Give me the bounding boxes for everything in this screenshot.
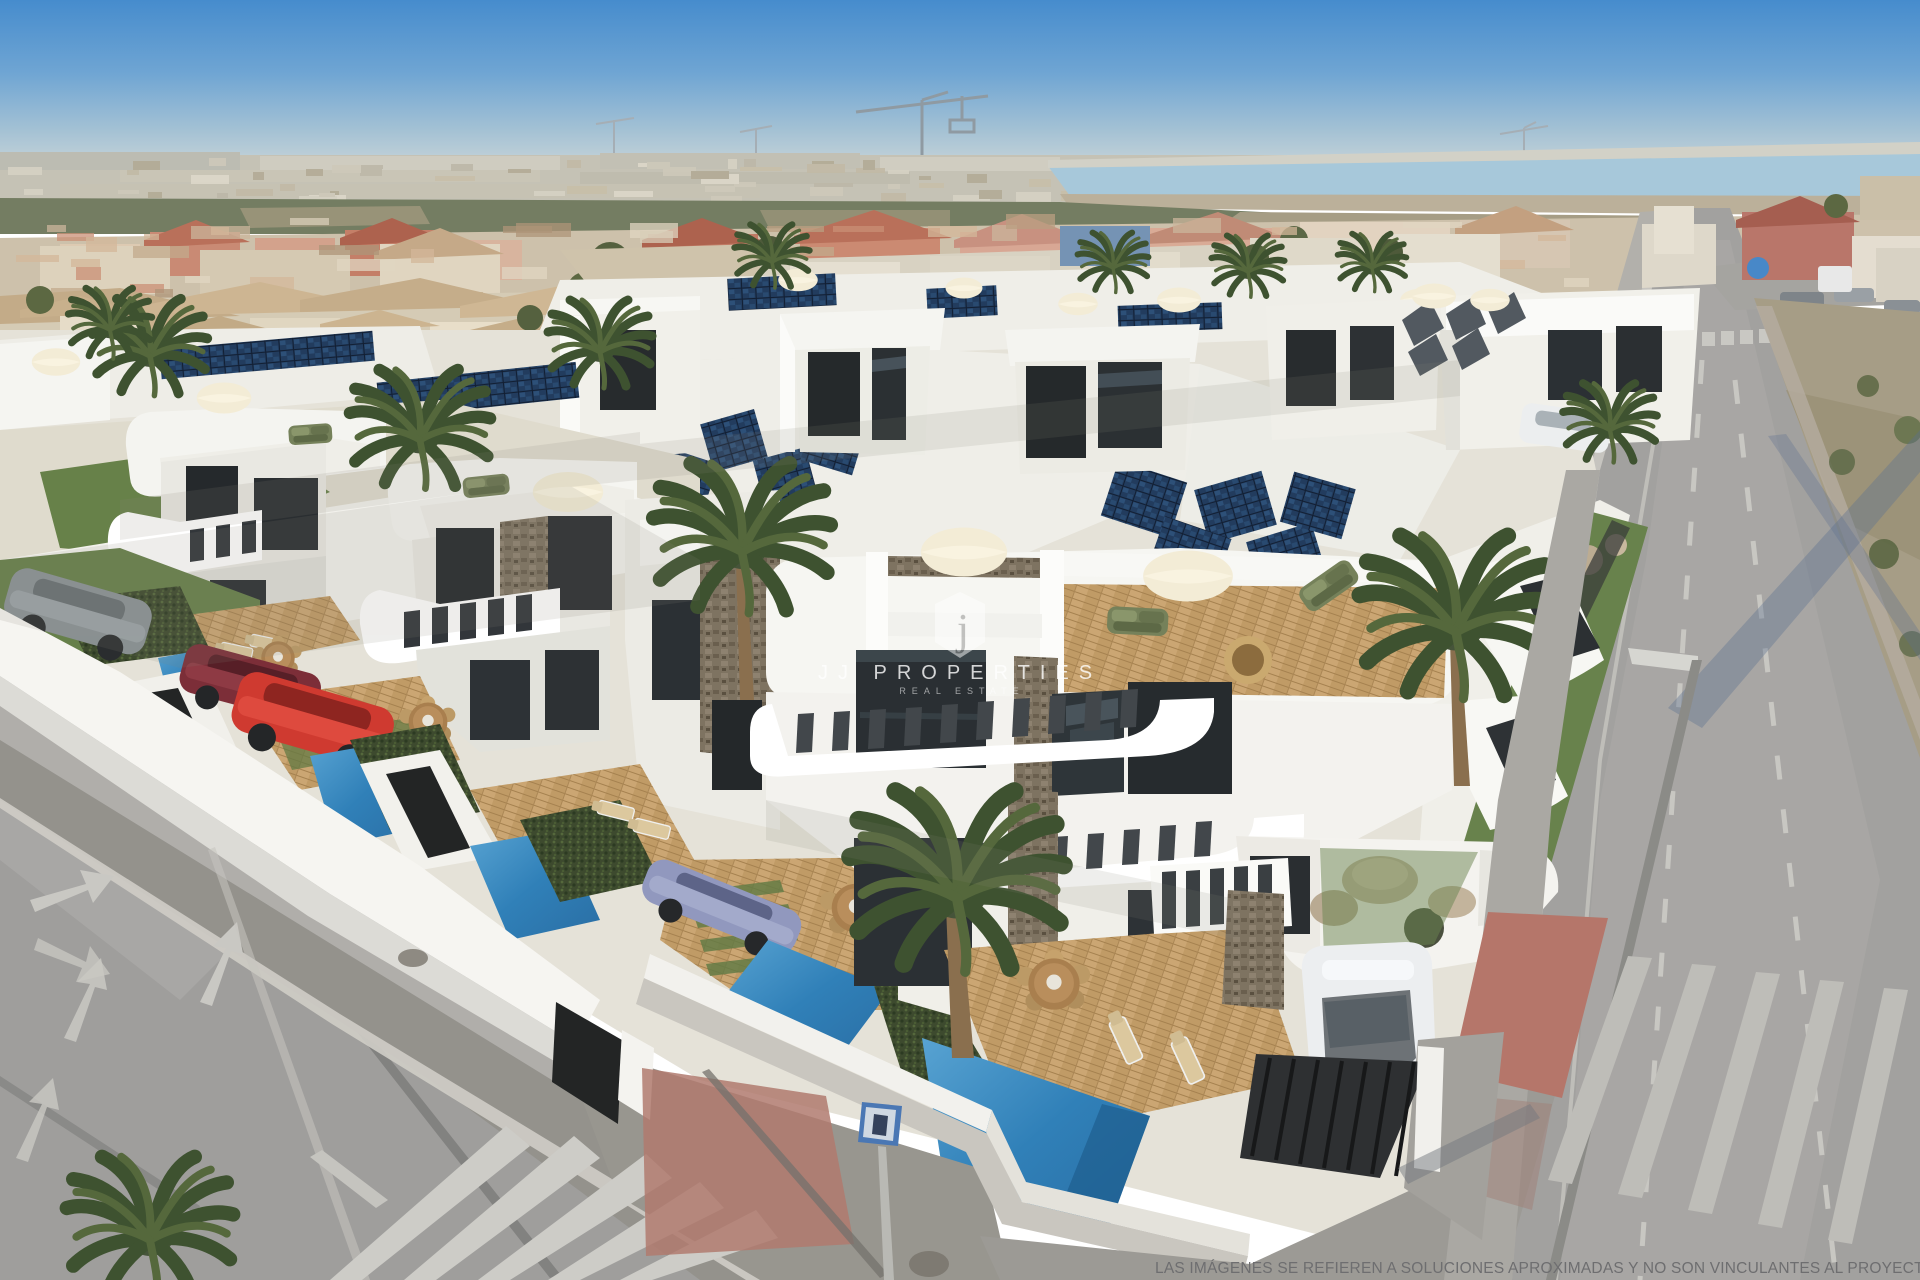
svg-text:LAS IMÁGENES SE REFIEREN A SOL: LAS IMÁGENES SE REFIEREN A SOLUCIONES AP… [1155,1260,1920,1277]
svg-text:REAL ESTATE: REAL ESTATE [899,686,1024,696]
svg-text:JJ PROPERTIES: JJ PROPERTIES [818,662,1102,684]
svg-text:j: j [955,605,969,654]
